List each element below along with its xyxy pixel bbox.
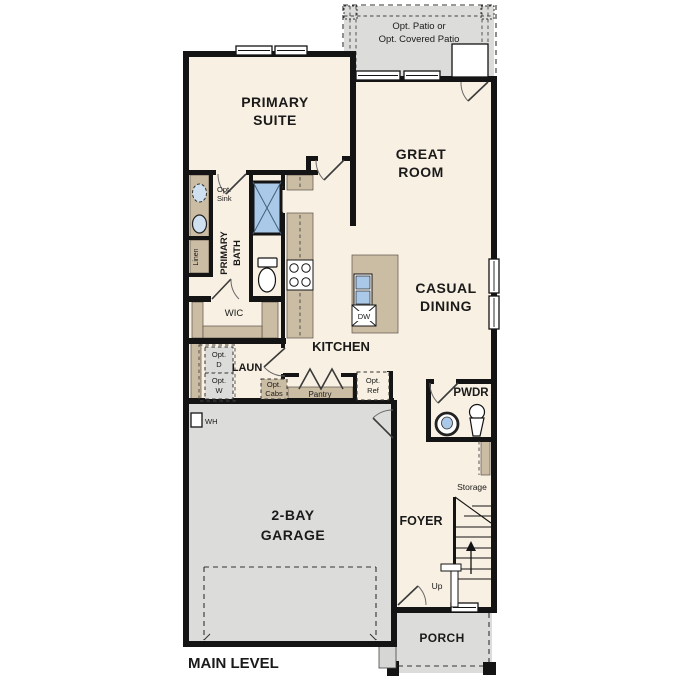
storage-door-panel: [481, 441, 490, 475]
great-room-label1: GREAT: [396, 146, 446, 162]
opt-sink-icon: [193, 184, 207, 202]
water-heater-label: WH: [205, 417, 218, 426]
dishwasher-label: DW: [358, 312, 371, 321]
opt-cabs-label2: Cabs: [265, 389, 283, 398]
laundry-label: LAUN: [232, 362, 263, 374]
pedestal-sink-icon: [470, 405, 485, 420]
sink-icon: [193, 215, 207, 233]
opt-sink-label2: Sink: [217, 194, 232, 203]
opt-ref-label2: Ref: [367, 386, 380, 395]
floor-plan-page: Opt. Patio or Opt. Covered Patio WH 2-BA…: [0, 0, 687, 687]
porch-post: [483, 662, 496, 675]
primary-suite-label1: PRIMARY: [241, 94, 309, 110]
wic-shelf: [262, 302, 278, 338]
garage-label-line2: GARAGE: [261, 527, 325, 543]
patio-label-line2: Opt. Covered Patio: [379, 34, 460, 45]
primary-bath-label2: BATH: [232, 240, 243, 266]
opt-washer-label2: W: [215, 386, 223, 395]
linen-label: Linen: [193, 248, 200, 265]
toilet-icon: [259, 268, 276, 292]
pwdr-label: PWDR: [453, 387, 489, 399]
stair-rail: [441, 564, 461, 571]
pantry-label: Pantry: [308, 390, 331, 399]
opt-dryer-label1: Opt.: [212, 350, 226, 359]
floor-plan-drawing: Opt. Patio or Opt. Covered Patio WH 2-BA…: [0, 0, 687, 687]
primary-suite-label2: SUITE: [253, 112, 297, 128]
opt-ref-label1: Opt.: [366, 376, 380, 385]
opt-washer-label1: Opt.: [212, 376, 226, 385]
wic-shelf: [203, 326, 262, 338]
foyer-label: FOYER: [399, 514, 442, 528]
patio-door-panel: [452, 44, 488, 77]
casual-dining-label2: DINING: [420, 298, 472, 314]
primary-bath-label1: PRIMARY: [219, 231, 230, 275]
garage-label-line1: 2-BAY: [271, 507, 314, 523]
stair-rail: [451, 571, 458, 607]
plan-title: MAIN LEVEL: [188, 655, 279, 672]
casual-dining-label1: CASUAL: [415, 280, 476, 296]
dishwasher-icon: DW: [352, 305, 376, 326]
opt-dryer-label2: D: [216, 360, 222, 369]
great-room-label2: ROOM: [398, 164, 444, 180]
up-label: Up: [432, 581, 443, 591]
wic-shelf: [192, 302, 203, 338]
porch-step: [379, 644, 396, 668]
wic-label: WIC: [225, 308, 244, 319]
toilet-tank-icon: [258, 258, 277, 267]
patio-label-line1: Opt. Patio or: [392, 21, 445, 32]
room-garage: WH 2-BAY GARAGE: [189, 403, 394, 643]
garage-floor: [189, 403, 394, 643]
opt-cabs-label1: Opt.: [267, 380, 281, 389]
porch-label: PORCH: [419, 631, 464, 645]
opt-sink-label1: Opt.: [217, 185, 231, 194]
laundry-counter: [191, 342, 201, 400]
storage-label: Storage: [457, 482, 487, 492]
kitchen-label: KITCHEN: [312, 339, 370, 354]
water-heater-icon: [191, 413, 202, 427]
